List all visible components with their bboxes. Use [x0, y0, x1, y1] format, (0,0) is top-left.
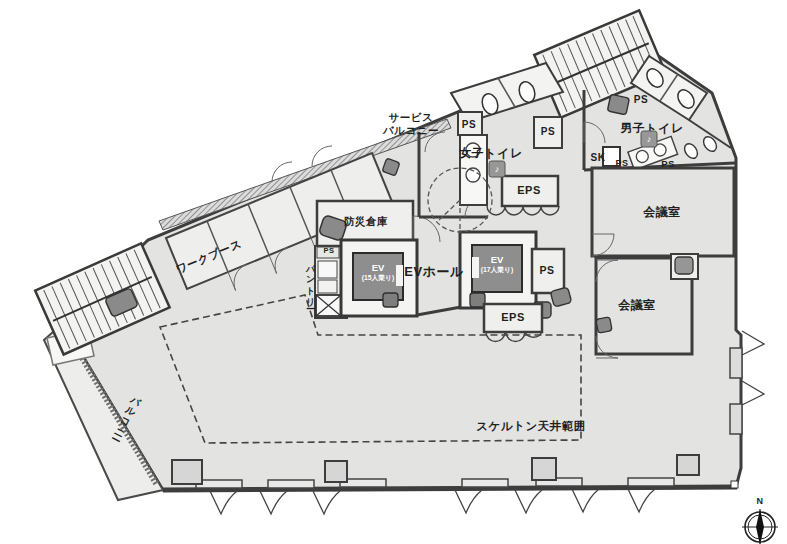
- ev-right-title: EV: [481, 254, 514, 266]
- service-balcony-label: サービス バルコニー: [383, 111, 439, 137]
- ps-label-pantry: PS: [323, 246, 334, 255]
- service-balcony-line1: サービス: [383, 111, 439, 124]
- ps-label-womens-left: PS: [462, 119, 476, 132]
- skeleton-ceiling-label: スケルトン天井範囲: [476, 419, 585, 433]
- meeting-room-upper-label: 会議室: [643, 205, 681, 220]
- ps-label-mens-sk: PS: [615, 158, 628, 169]
- eps-label-bottom: EPS: [501, 311, 525, 325]
- compass-icon: [742, 509, 778, 544]
- ps-label-core-right: PS: [539, 264, 554, 277]
- ps-box-between-rooms: [671, 254, 698, 279]
- disaster-storage-label: 防災倉庫: [344, 215, 388, 228]
- ev-right-label: EV (17人乗り): [481, 254, 514, 274]
- floor-plan-page: サービス バルコニー 女子トイレ 男子トイレ PS PS PS PS PS PS…: [0, 0, 787, 544]
- music-note-icon: ♪: [489, 161, 506, 178]
- ps-label-mens-bottom: PS: [661, 158, 675, 170]
- womens-toilet-label: 女子トイレ: [459, 146, 522, 161]
- ev-left-title: EV: [362, 262, 395, 274]
- music-note-icon: ♪: [641, 131, 658, 148]
- compass-north-label: N: [757, 496, 764, 507]
- eps-label-top: EPS: [517, 184, 541, 198]
- ev-right-capacity: (17人乗り): [481, 266, 514, 274]
- pantry-label: パントリー: [306, 258, 315, 304]
- meeting-room-lower-label: 会議室: [618, 298, 656, 313]
- sk-label: SK: [591, 152, 606, 165]
- ev-left-label: EV (15人乗り): [362, 262, 395, 282]
- ps-label-mens-top: PS: [634, 94, 648, 107]
- ev-left-capacity: (15人乗り): [362, 274, 395, 282]
- ev-hall-label: EVホール: [404, 264, 463, 280]
- ps-label-womens-right: PS: [541, 126, 555, 139]
- service-balcony-line2: バルコニー: [383, 124, 439, 137]
